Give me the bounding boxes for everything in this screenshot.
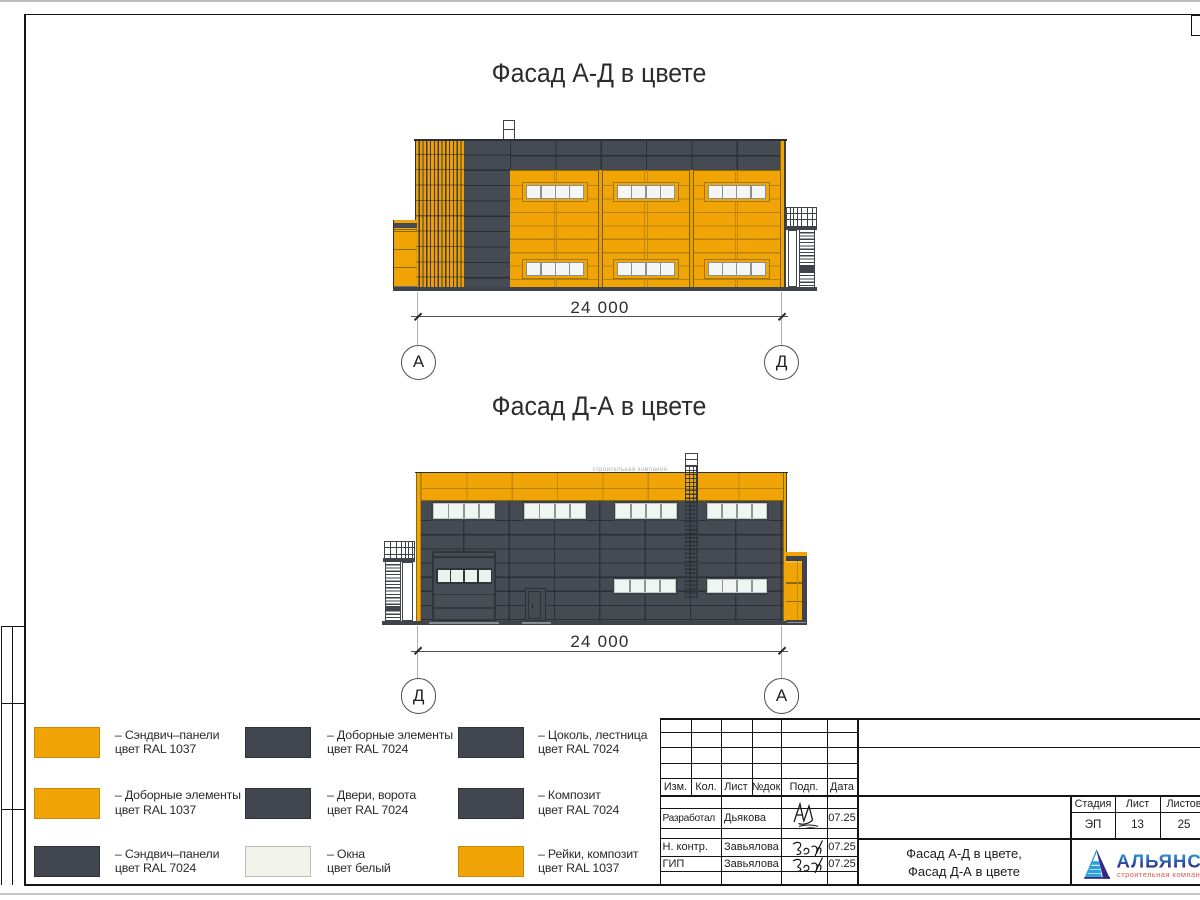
svg-text:АЛЬЯНС: АЛЬЯНС (1117, 851, 1200, 872)
svg-text:строительная компания: строительная компания (1117, 870, 1200, 879)
